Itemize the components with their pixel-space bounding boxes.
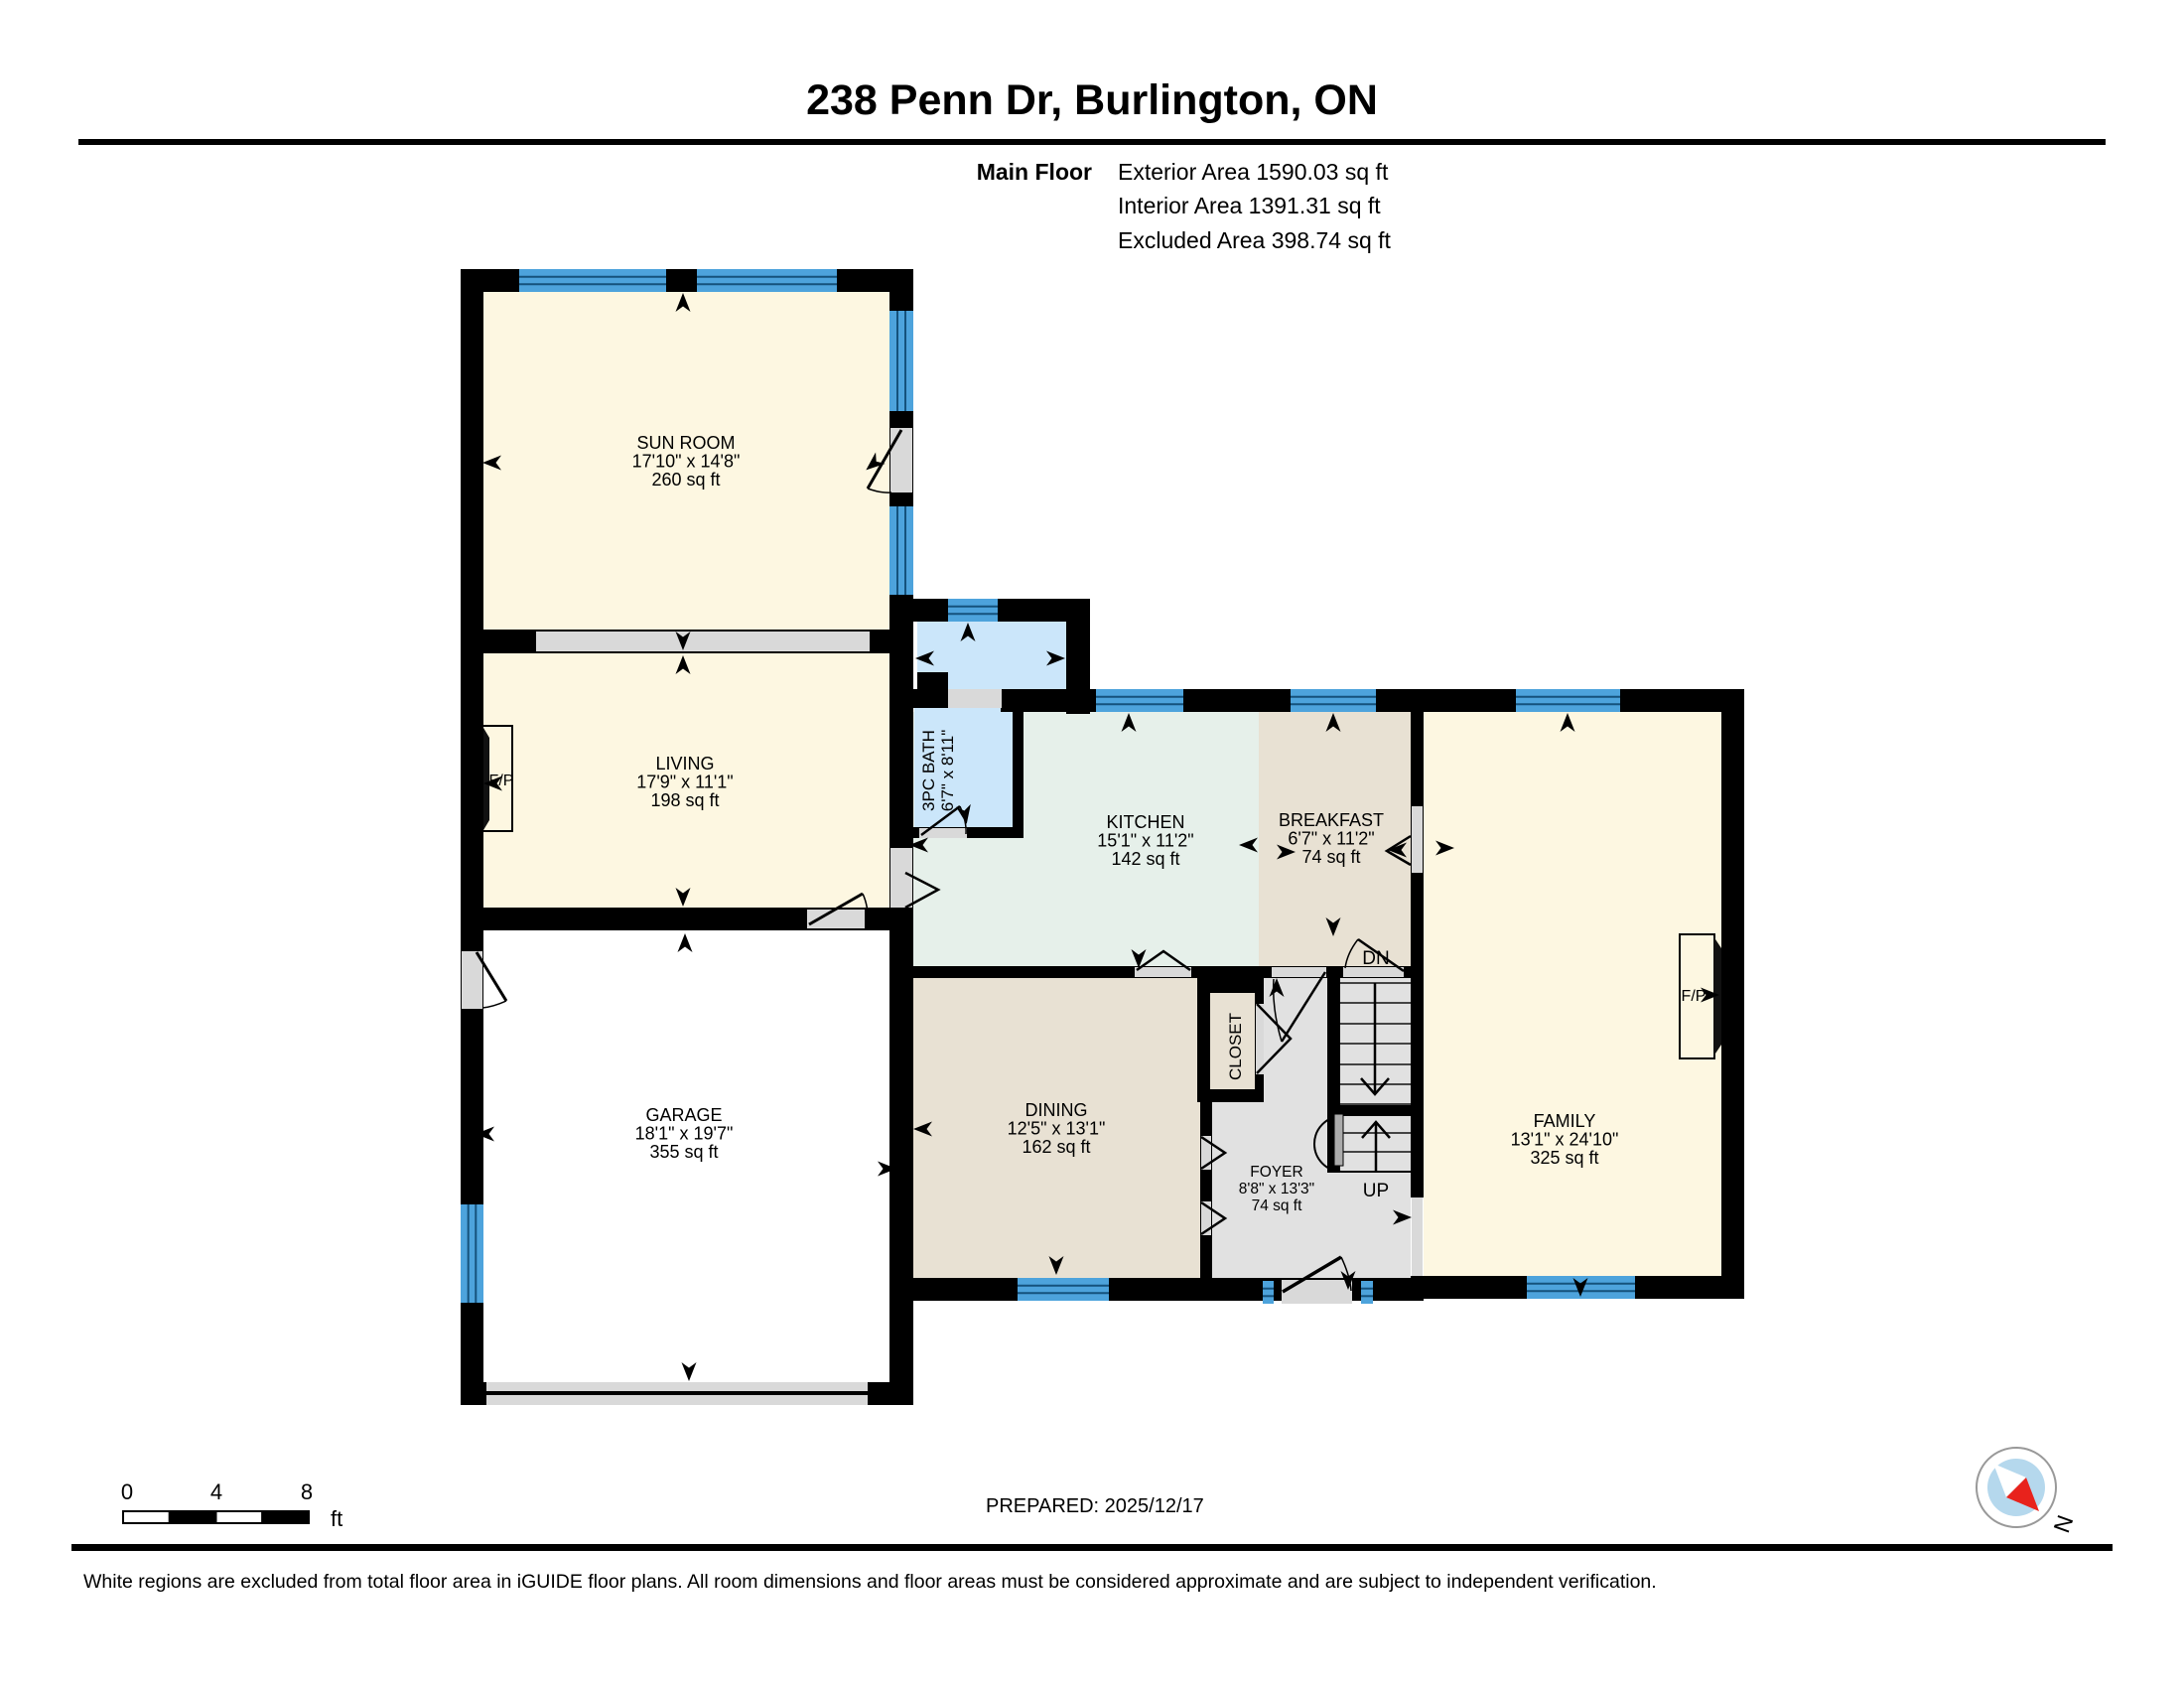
svg-text:13'1" x 24'10": 13'1" x 24'10" bbox=[1511, 1130, 1619, 1150]
svg-text:F/P: F/P bbox=[489, 773, 514, 789]
svg-text:CLOSET: CLOSET bbox=[1226, 1013, 1245, 1080]
svg-text:6'7" x 11'2": 6'7" x 11'2" bbox=[1288, 829, 1374, 849]
svg-text:FAMILY: FAMILY bbox=[1534, 1111, 1596, 1131]
svg-text:198 sq ft: 198 sq ft bbox=[650, 790, 719, 810]
svg-text:SUN ROOM: SUN ROOM bbox=[637, 433, 736, 453]
svg-text:3PC BATH: 3PC BATH bbox=[919, 730, 938, 811]
svg-text:162 sq ft: 162 sq ft bbox=[1022, 1137, 1090, 1157]
svg-text:ft: ft bbox=[331, 1506, 342, 1531]
svg-text:74 sq ft: 74 sq ft bbox=[1301, 847, 1360, 867]
svg-text:0: 0 bbox=[121, 1479, 133, 1504]
svg-text:12'5" x 13'1": 12'5" x 13'1" bbox=[1008, 1119, 1106, 1139]
svg-text:N: N bbox=[2048, 1511, 2078, 1536]
svg-text:142 sq ft: 142 sq ft bbox=[1111, 849, 1179, 869]
svg-text:F/P: F/P bbox=[1682, 988, 1706, 1005]
svg-text:LIVING: LIVING bbox=[655, 754, 714, 774]
svg-text:4: 4 bbox=[210, 1479, 222, 1504]
svg-text:DN: DN bbox=[1362, 948, 1389, 969]
svg-text:6'7" x 8'11": 6'7" x 8'11" bbox=[938, 730, 957, 812]
svg-text:DINING: DINING bbox=[1025, 1100, 1088, 1120]
svg-text:UP: UP bbox=[1363, 1181, 1389, 1201]
svg-text:18'1" x 19'7": 18'1" x 19'7" bbox=[635, 1124, 734, 1144]
svg-text:74 sq ft: 74 sq ft bbox=[1252, 1197, 1303, 1214]
svg-text:325 sq ft: 325 sq ft bbox=[1530, 1148, 1598, 1168]
svg-text:BREAKFAST: BREAKFAST bbox=[1279, 810, 1384, 830]
svg-text:17'9" x 11'1": 17'9" x 11'1" bbox=[636, 773, 733, 792]
svg-text:8'8" x 13'3": 8'8" x 13'3" bbox=[1239, 1181, 1314, 1197]
svg-text:8: 8 bbox=[301, 1479, 313, 1504]
svg-text:17'10" x 14'8": 17'10" x 14'8" bbox=[632, 452, 741, 472]
svg-text:KITCHEN: KITCHEN bbox=[1106, 812, 1184, 832]
svg-text:FOYER: FOYER bbox=[1250, 1164, 1302, 1181]
svg-text:355 sq ft: 355 sq ft bbox=[649, 1142, 718, 1162]
svg-text:15'1" x 11'2": 15'1" x 11'2" bbox=[1097, 831, 1193, 851]
svg-text:GARAGE: GARAGE bbox=[645, 1105, 722, 1125]
svg-text:260 sq ft: 260 sq ft bbox=[651, 470, 720, 490]
